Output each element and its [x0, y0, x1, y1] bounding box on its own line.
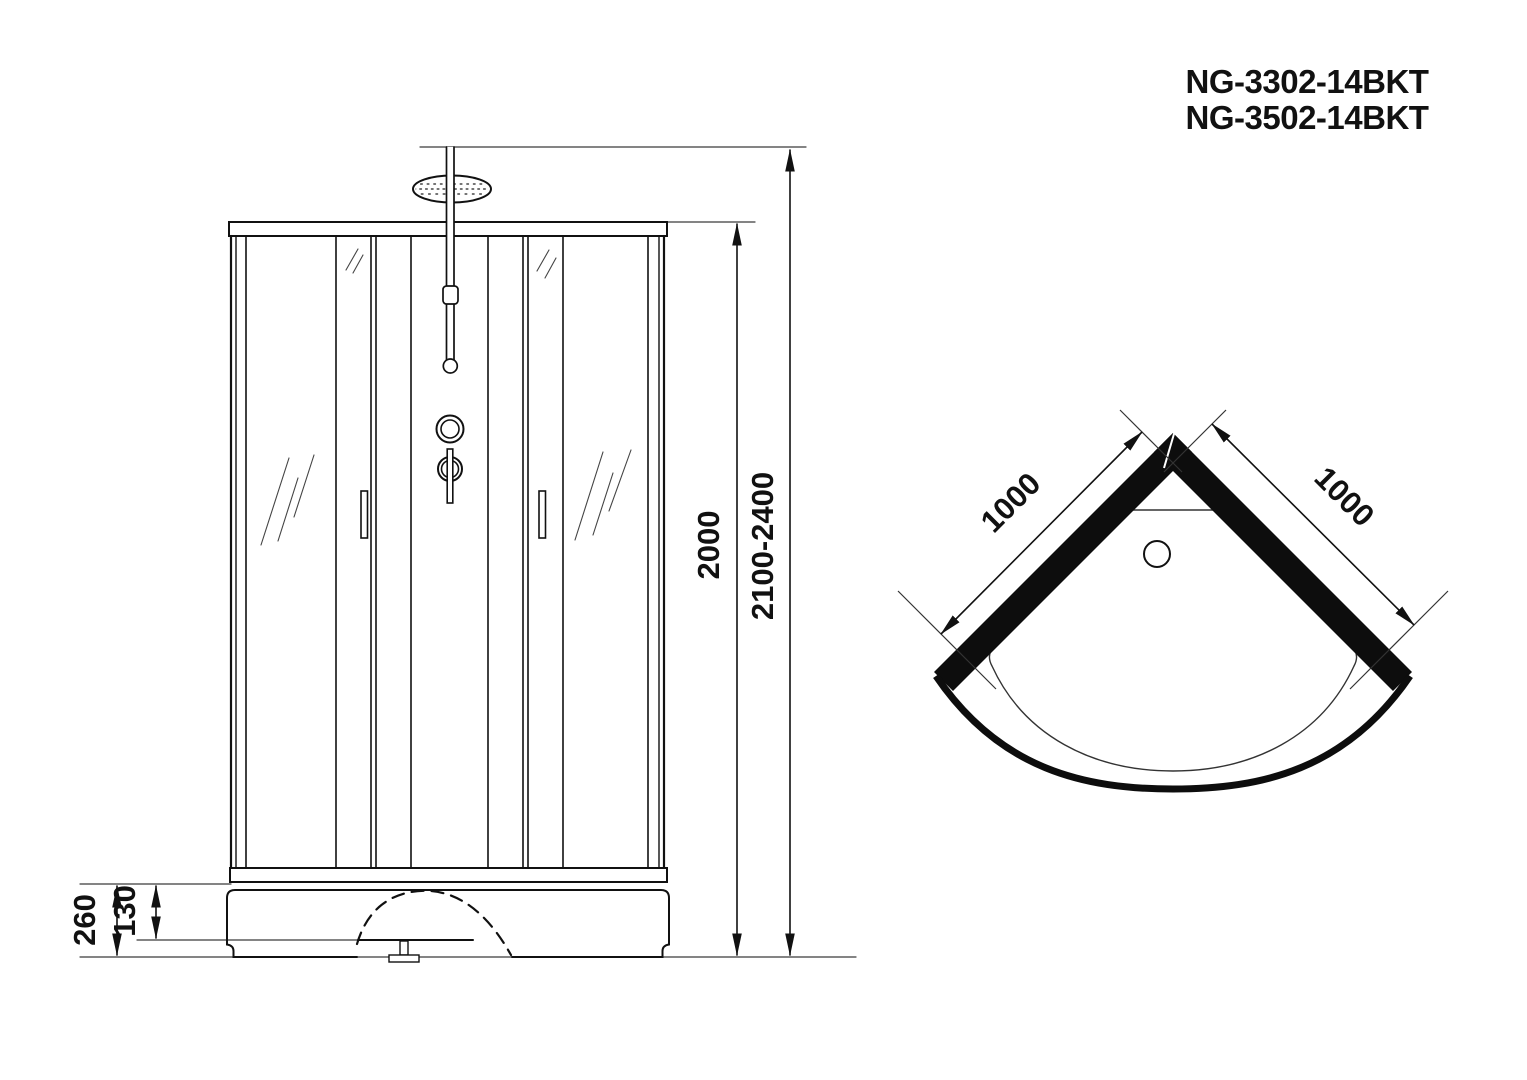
shower-column [413, 147, 491, 373]
overall-height-label: 2100-2400 [745, 472, 780, 620]
tray-rim [230, 868, 667, 882]
hand-shower-bracket [443, 286, 458, 304]
shower-cabin-drawing: NG-3302-14BKT NG-3502-14BKT 2000 2100-24… [0, 0, 1527, 1080]
base-step-label: 130 [107, 885, 142, 937]
inner-height-label: 2000 [691, 511, 726, 580]
hand-shower-tip [443, 359, 457, 373]
skirt-access-cutout [357, 891, 511, 955]
right-door-handle [539, 491, 546, 538]
base-height-label: 260 [67, 894, 102, 946]
extension-lines [80, 147, 856, 957]
drain-foot-stem [400, 941, 408, 955]
mixer-controls [437, 416, 464, 504]
tray-skirt [227, 890, 669, 957]
front-view-elevation: 2000 2100-2400 260 130 [67, 147, 856, 962]
left-door-handle [361, 491, 368, 538]
model-number-1: NG-3302-14BKT [1186, 63, 1429, 100]
model-number-2: NG-3502-14BKT [1186, 99, 1429, 136]
top-view-plan: 1000 1000 [898, 410, 1448, 789]
technical-drawing-canvas: NG-3302-14BKT NG-3502-14BKT 2000 2100-24… [0, 0, 1527, 1080]
right-side-label: 1000 [1308, 460, 1382, 534]
mixer-lever [447, 449, 453, 503]
drain-hole [1144, 541, 1170, 567]
left-side-label: 1000 [974, 466, 1048, 540]
model-numbers: NG-3302-14BKT NG-3502-14BKT [1186, 63, 1429, 136]
drain-foot-base [389, 955, 419, 962]
tray-inner-outline [989, 510, 1356, 771]
